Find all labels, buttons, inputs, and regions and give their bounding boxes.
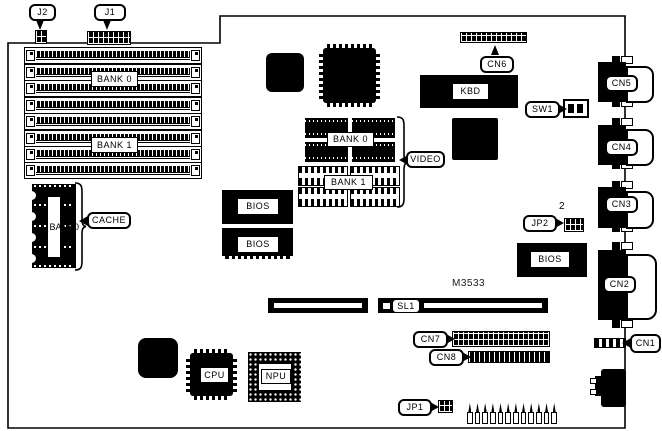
chip-notch [31, 191, 36, 200]
j1-label: J1 [94, 4, 126, 21]
power-pin [475, 412, 481, 424]
video-bank1-label: BANK 1 [324, 175, 373, 190]
simm-clip [191, 149, 200, 160]
power-pin [528, 412, 534, 424]
kbd-label-text: KBD [460, 87, 480, 96]
jp2-pin2-number: 2 [559, 201, 565, 212]
simm-clip [191, 83, 200, 94]
video-label-text: VIDEO [410, 155, 441, 164]
sw1-label-text: SW1 [532, 105, 553, 114]
cn5-label-text: CN5 [612, 79, 632, 88]
simm-clip [191, 67, 200, 78]
jp2-label-text: JP2 [531, 219, 548, 228]
edge-tab [621, 320, 633, 328]
chipset-part-number: M3533 [452, 278, 485, 289]
video-bank1-text: BANK 1 [331, 178, 366, 187]
cn1-label: CN1 [630, 334, 661, 353]
keyboard-din-connector [601, 369, 626, 407]
qfp-pins [327, 44, 372, 48]
video-bank0-label: BANK 0 [327, 132, 374, 147]
dip-switch-position [577, 104, 583, 113]
simm-clip [26, 67, 35, 78]
cn2-label-text: CN2 [610, 280, 630, 289]
cn6-pointer [491, 45, 499, 55]
edge-tab [612, 242, 620, 250]
cache-pin-row [34, 265, 74, 267]
qfp-pins [194, 396, 229, 400]
jp1-label: JP1 [398, 399, 432, 416]
dip-switch-position [568, 104, 574, 113]
cpu-label-text: CPU [204, 371, 225, 380]
power-connector [466, 401, 558, 422]
chip-qfp-large [323, 48, 376, 103]
cn7-header [452, 331, 550, 347]
sl1-label: SL1 [392, 299, 420, 313]
simm-bank1-label: BANK 1 [91, 137, 138, 153]
cn8-label-text: CN8 [437, 353, 457, 362]
cn1-label-text: CN1 [636, 339, 656, 348]
motherboard-diagram: J2 J1 BANK 0 BANK 1 BANK0 CACHE KBD [0, 0, 662, 431]
cn8-label: CN8 [429, 349, 464, 366]
simm-contacts [36, 166, 190, 175]
jp1-label-text: JP1 [406, 403, 423, 412]
chip-square [138, 338, 178, 378]
simm-slot [24, 47, 202, 64]
simm-clip [191, 50, 200, 61]
j2-label-text: J2 [37, 8, 48, 17]
simm-slot [24, 113, 202, 130]
power-pin [467, 412, 473, 424]
qfp-pins [194, 349, 229, 353]
cn3-label-text: CN3 [612, 200, 632, 209]
j1-label-text: J1 [105, 8, 116, 17]
video-bank0-text: BANK 0 [333, 135, 368, 144]
video-label: VIDEO [406, 151, 445, 168]
cpu-label: CPU [200, 367, 229, 383]
cn4-label: CN4 [605, 139, 638, 156]
isa-slot-segment [268, 298, 368, 313]
cache-label-text: CACHE [92, 216, 126, 225]
cn6-label: CN6 [480, 56, 514, 73]
cn2-label: CN2 [603, 276, 636, 293]
cn3-label: CN3 [605, 196, 638, 213]
cn6-header [460, 32, 527, 43]
j2-label: J2 [29, 4, 56, 21]
simm-slot [24, 97, 202, 114]
bios-3-text: BIOS [538, 255, 562, 264]
jp1-jumper [438, 400, 453, 413]
bios-chip-2-label: BIOS [237, 236, 279, 253]
cache-bank-vertical-label: BANK0 [47, 196, 61, 258]
simm-clip [26, 165, 35, 176]
power-pin [521, 412, 527, 424]
cn5-label: CN5 [605, 75, 638, 92]
chip-square [452, 118, 498, 160]
jp2-label: JP2 [523, 215, 557, 232]
chip-square [266, 53, 304, 92]
chip-notch [31, 254, 36, 263]
simm-clip [191, 100, 200, 111]
j2-header [35, 30, 47, 44]
slot-opening [424, 303, 542, 308]
j1-pointer [103, 20, 111, 30]
edge-tab [590, 378, 597, 384]
chip-notch [31, 233, 36, 242]
dram-socket [298, 187, 348, 207]
j2-pointer [36, 20, 44, 30]
power-pin [544, 412, 550, 424]
simm-clip [26, 83, 35, 94]
simm-slot [24, 162, 202, 179]
bios-1-text: BIOS [246, 202, 270, 211]
cn7-label: CN7 [413, 331, 448, 348]
simm-clip [191, 165, 200, 176]
cn8-header [468, 351, 550, 363]
simm-clip [26, 50, 35, 61]
cn7-label-text: CN7 [421, 335, 441, 344]
simm-clip [26, 133, 35, 144]
edge-tab [590, 389, 597, 395]
cn4-label-text: CN4 [612, 143, 632, 152]
kbd-label: KBD [452, 83, 489, 100]
simm-contacts [36, 117, 190, 126]
cache-label: CACHE [87, 212, 131, 229]
qfp-pins [376, 52, 380, 99]
simm-clip [26, 100, 35, 111]
sl1-label-text: SL1 [397, 302, 415, 311]
simm-contacts [36, 101, 190, 110]
power-pin [505, 412, 511, 424]
bios-chip-1-label: BIOS [237, 198, 279, 215]
chip-notch [31, 212, 36, 221]
npu-label-text: NPU [266, 372, 287, 381]
power-pin [490, 412, 496, 424]
qfp-pins [327, 103, 372, 107]
slot-key [383, 303, 390, 309]
npu-label: NPU [261, 369, 291, 384]
cn6-label-text: CN6 [487, 60, 507, 69]
power-pin [482, 412, 488, 424]
bios-chip-3-label: BIOS [530, 251, 570, 268]
power-pin [551, 412, 557, 424]
edge-tab [612, 320, 620, 328]
simm-clip [26, 116, 35, 127]
simm-clip [191, 133, 200, 144]
qfp-pins [233, 357, 237, 392]
cache-bank-vertical-text: BANK0 [50, 222, 59, 233]
simm-bank1-text: BANK 1 [97, 141, 132, 150]
power-pin [513, 412, 519, 424]
jp2-jumper [564, 218, 584, 232]
cache-pin-row [34, 185, 74, 187]
simm-bank0-label: BANK 0 [91, 71, 138, 87]
dram-socket [350, 187, 400, 207]
simm-bank0-text: BANK 0 [97, 75, 132, 84]
simm-clip [191, 116, 200, 127]
bios-2-text: BIOS [246, 240, 270, 249]
simm-clip [26, 149, 35, 160]
qfp-pins [186, 357, 190, 392]
edge-tab [621, 242, 633, 250]
sw1-label: SW1 [525, 101, 560, 118]
qfp-pins [319, 52, 323, 99]
simm-contacts [36, 51, 190, 60]
slot-opening [274, 303, 362, 308]
power-pin [536, 412, 542, 424]
power-pin [498, 412, 504, 424]
j1-header [87, 31, 131, 45]
